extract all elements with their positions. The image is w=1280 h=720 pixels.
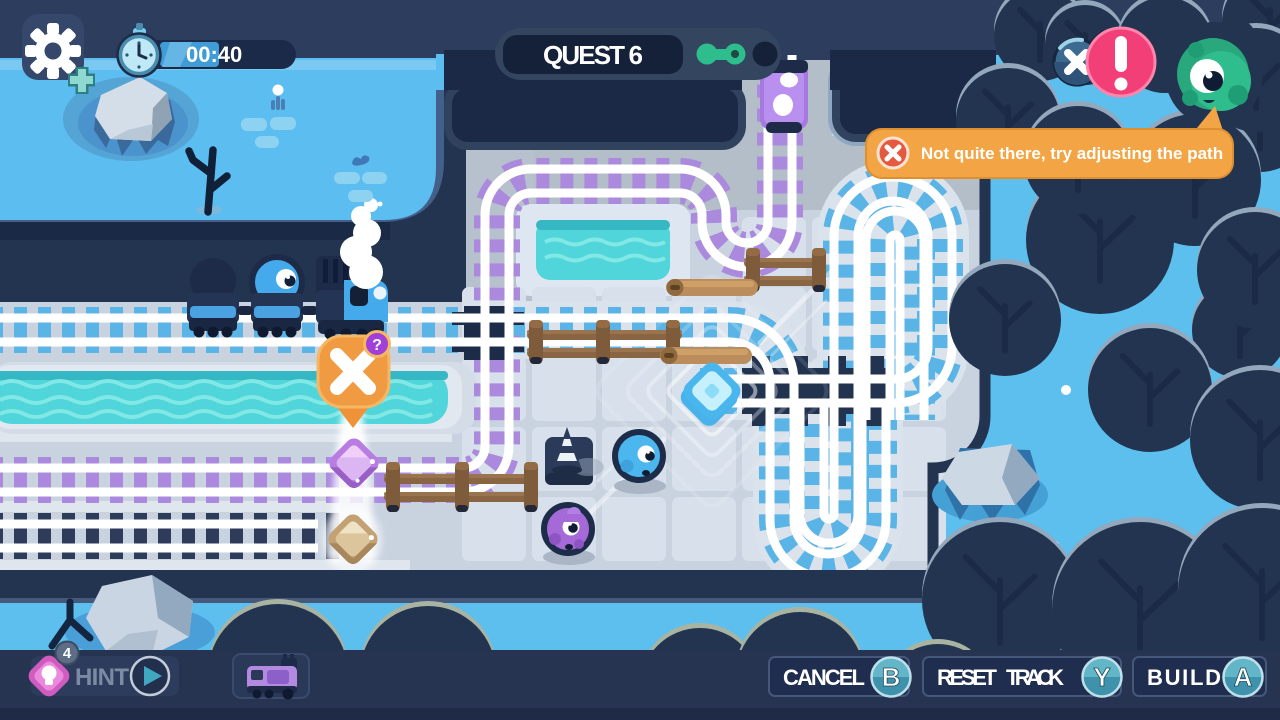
svg-text:RESET: RESET bbox=[937, 665, 998, 690]
svg-text:Not quite there, try adjusting: Not quite there, try adjusting the path bbox=[921, 144, 1223, 163]
svg-text:00:40: 00:40 bbox=[186, 42, 242, 67]
svg-text:4: 4 bbox=[63, 645, 72, 662]
svg-text:CANCEL: CANCEL bbox=[783, 665, 865, 690]
svg-text:A: A bbox=[1234, 662, 1253, 692]
svg-text:Y: Y bbox=[1093, 662, 1110, 692]
svg-text:BUILD: BUILD bbox=[1147, 665, 1221, 690]
svg-text:HINT: HINT bbox=[75, 664, 129, 691]
svg-text:QUEST 6: QUEST 6 bbox=[543, 40, 643, 70]
svg-text:B: B bbox=[882, 662, 901, 692]
svg-text:?: ? bbox=[372, 337, 382, 354]
svg-text:TRACK: TRACK bbox=[1006, 665, 1064, 690]
